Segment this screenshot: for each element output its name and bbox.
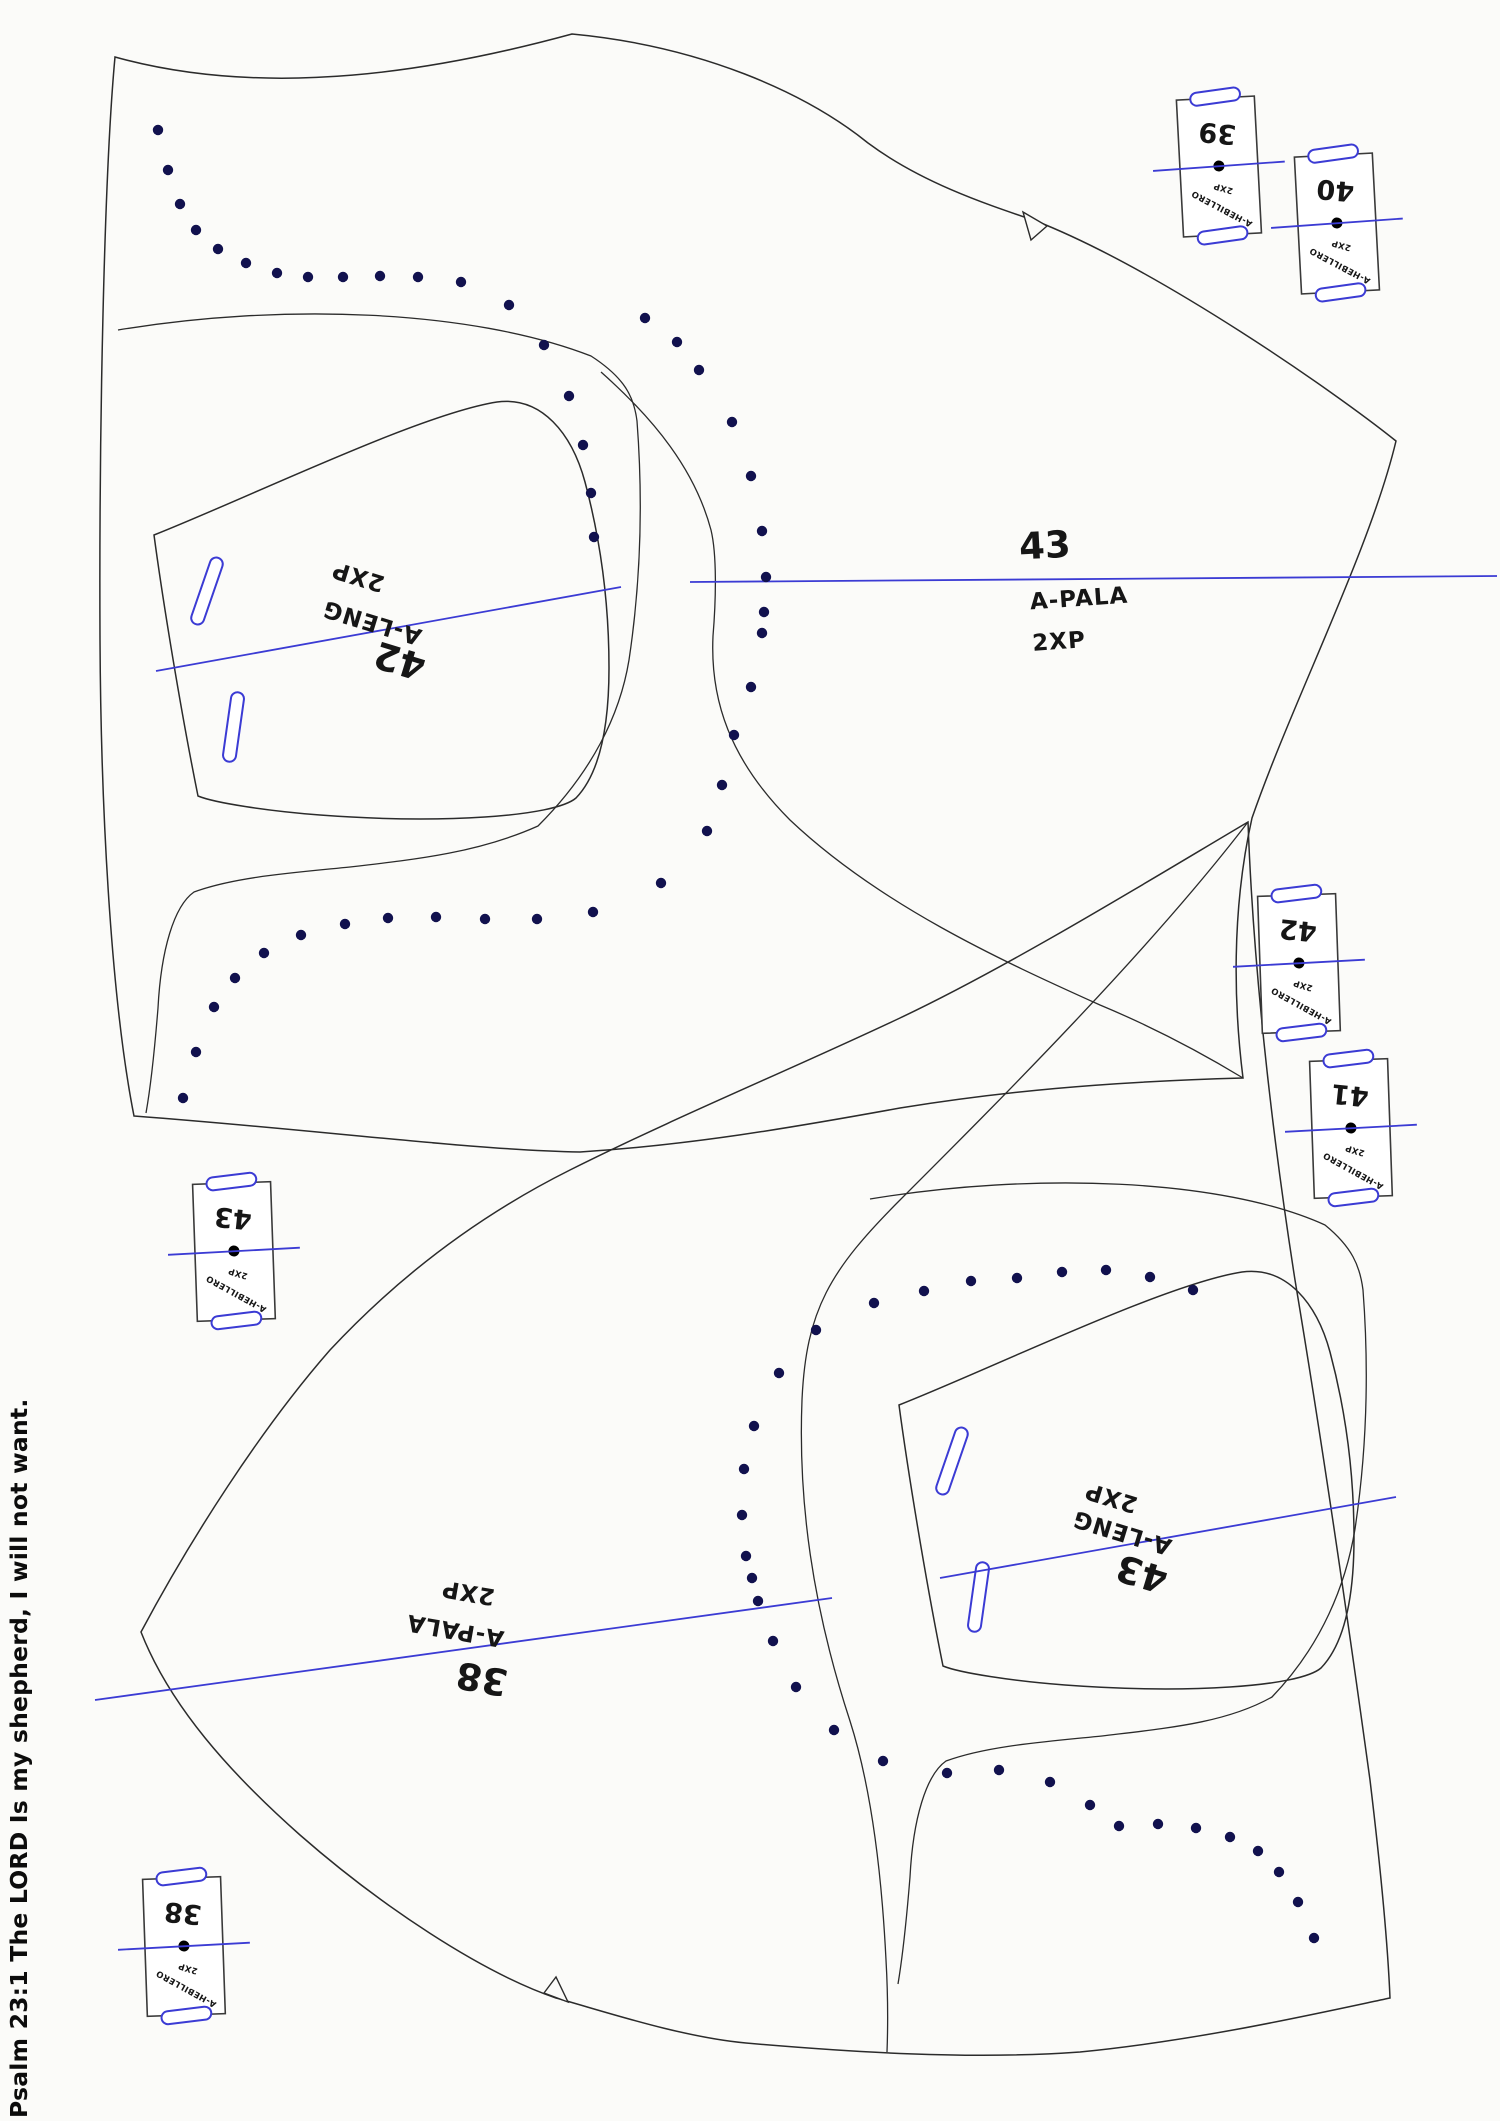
- stitch-dot: [175, 199, 185, 209]
- bottom-assembly: 38 A-PALA 2XP 43 A-LENG 2XP: [95, 822, 1396, 2055]
- stitch-dot: [578, 440, 588, 450]
- strap-number: 43: [213, 1200, 254, 1235]
- stitch-dot: [338, 272, 348, 282]
- stitch-dot: [1225, 1832, 1235, 1842]
- stitch-dot: [586, 488, 596, 498]
- stitch-dot: [532, 914, 542, 924]
- stitch-dot: [759, 607, 769, 617]
- stitch-dot: [1293, 1897, 1303, 1907]
- tongue-slot: [189, 556, 224, 626]
- stitch-dot: [919, 1286, 929, 1296]
- stitch-dot: [303, 272, 313, 282]
- stitch-dot: [811, 1325, 821, 1335]
- vamp-top-throat-cutout: [118, 314, 640, 1113]
- stitch-dot: [456, 277, 466, 287]
- stitch-dot: [375, 271, 385, 281]
- stitch-dot: [791, 1682, 801, 1692]
- stitch-dot: [739, 1464, 749, 1474]
- vamp-top-grainline: [690, 576, 1497, 582]
- stitch-dot: [768, 1636, 778, 1646]
- strap-number: 38: [163, 1895, 204, 1930]
- stitch-dot: [564, 391, 574, 401]
- stitch-dot: [1253, 1846, 1263, 1856]
- stitch-dot: [588, 907, 598, 917]
- stitch-dot: [757, 628, 767, 638]
- stitch-dot: [1045, 1777, 1055, 1787]
- vamp-top-notch-icon: [1023, 212, 1047, 240]
- stitch-dot: [717, 780, 727, 790]
- stitch-dot: [757, 526, 767, 536]
- stitch-dot: [1012, 1273, 1022, 1283]
- stitch-dot: [209, 1002, 219, 1012]
- vamp-bottom-inner-edge: [801, 822, 1248, 2052]
- stitch-dot: [230, 973, 240, 983]
- stitch-dot: [431, 912, 441, 922]
- stitch-dot: [163, 165, 173, 175]
- stitch-dot: [737, 1510, 747, 1520]
- pattern-drawing: 43 A-PALA 2XP 42 A-LENG 2XP 38 A-PALA 2X…: [0, 0, 1500, 2121]
- stitch-dot: [869, 1298, 879, 1308]
- stitch-dot: [749, 1421, 759, 1431]
- stitch-dot: [656, 878, 666, 888]
- tongue-top-name: A-LENG: [320, 595, 425, 650]
- vamp-top-inner-edge: [601, 372, 1243, 1078]
- vamp-bottom-number: 38: [453, 1653, 511, 1704]
- stitch-dots-bottom: [737, 1265, 1319, 1943]
- stitch-dot: [1085, 1800, 1095, 1810]
- stitch-dot: [741, 1551, 751, 1561]
- strap-piece-38: 38 2XP A-HEBILLERO: [115, 1866, 252, 2027]
- strap-number: 39: [1197, 115, 1237, 149]
- stitch-dot: [753, 1596, 763, 1606]
- stitch-dot: [1188, 1285, 1198, 1295]
- strap-number: 41: [1330, 1077, 1371, 1112]
- stitch-dot: [191, 1047, 201, 1057]
- stitch-dot: [994, 1765, 1004, 1775]
- stitch-dot: [729, 730, 739, 740]
- vamp-top-number: 43: [1018, 523, 1072, 569]
- stitch-dot: [539, 340, 549, 350]
- strap-number: 40: [1315, 172, 1355, 206]
- stitch-dot: [1153, 1819, 1163, 1829]
- stitch-dot: [296, 930, 306, 940]
- vamp-top-name: A-PALA: [1029, 583, 1129, 616]
- stitch-dot: [672, 337, 682, 347]
- stitch-dot: [1114, 1821, 1124, 1831]
- stitch-dot: [413, 272, 423, 282]
- tongue-top: [154, 401, 609, 819]
- vamp-bottom-outline: [141, 822, 1390, 2055]
- stitch-dot: [340, 919, 350, 929]
- tongue-bottom: [899, 1271, 1354, 1689]
- stitch-dot: [480, 914, 490, 924]
- strap-piece-43: 43 2XP A-HEBILLERO: [165, 1171, 302, 1332]
- stitch-dot: [966, 1276, 976, 1286]
- stitch-dot: [153, 125, 163, 135]
- strap-number: 42: [1278, 912, 1319, 947]
- stitch-dot: [589, 532, 599, 542]
- stitch-dots-top: [153, 125, 771, 1103]
- stitch-dot: [640, 313, 650, 323]
- stitch-dot: [504, 300, 514, 310]
- stitch-dot: [746, 471, 756, 481]
- stitch-dot: [878, 1756, 888, 1766]
- stitch-dot: [774, 1368, 784, 1378]
- stitch-dot: [1101, 1265, 1111, 1275]
- stitch-dot: [761, 572, 771, 582]
- vamp-top-quantity: 2XP: [1031, 627, 1086, 657]
- stitch-dot: [178, 1093, 188, 1103]
- stitch-dot: [746, 682, 756, 692]
- stitch-dot: [272, 268, 282, 278]
- strap-piece-40: 40 2XP A-HEBILLERO: [1267, 142, 1407, 305]
- vamp-bottom-name: A-PALA: [404, 1609, 505, 1652]
- stitch-dot: [747, 1573, 757, 1583]
- stitch-dot: [213, 244, 223, 254]
- stitch-dot: [1057, 1267, 1067, 1277]
- stitch-dot: [1145, 1272, 1155, 1282]
- psalm-verse: Psalm 23:1 The LORD Is my shepherd, I wi…: [5, 1399, 33, 2119]
- stitch-dot: [727, 417, 737, 427]
- stitch-dot: [1191, 1823, 1201, 1833]
- stitch-dot: [259, 948, 269, 958]
- vamp-bottom-quantity: 2XP: [440, 1575, 497, 1610]
- stitch-dot: [942, 1768, 952, 1778]
- strap-piece-41: 41 2XP A-HEBILLERO: [1282, 1048, 1419, 1209]
- strap-piece-39: 39 2XP A-HEBILLERO: [1149, 85, 1289, 248]
- stitch-dot: [694, 365, 704, 375]
- stitch-dot: [702, 826, 712, 836]
- pattern-sheet: 43 A-PALA 2XP 42 A-LENG 2XP 38 A-PALA 2X…: [0, 0, 1500, 2121]
- stitch-dot: [191, 225, 201, 235]
- stitch-dot: [1309, 1933, 1319, 1943]
- tongue-top-quantity: 2XP: [329, 556, 388, 597]
- strap-piece-42: 42 2XP A-HEBILLERO: [1230, 883, 1367, 1044]
- tongue-slot: [222, 691, 245, 762]
- stitch-dot: [1274, 1867, 1284, 1877]
- stitch-dot: [241, 258, 251, 268]
- stitch-dot: [383, 913, 393, 923]
- stitch-dot: [829, 1725, 839, 1735]
